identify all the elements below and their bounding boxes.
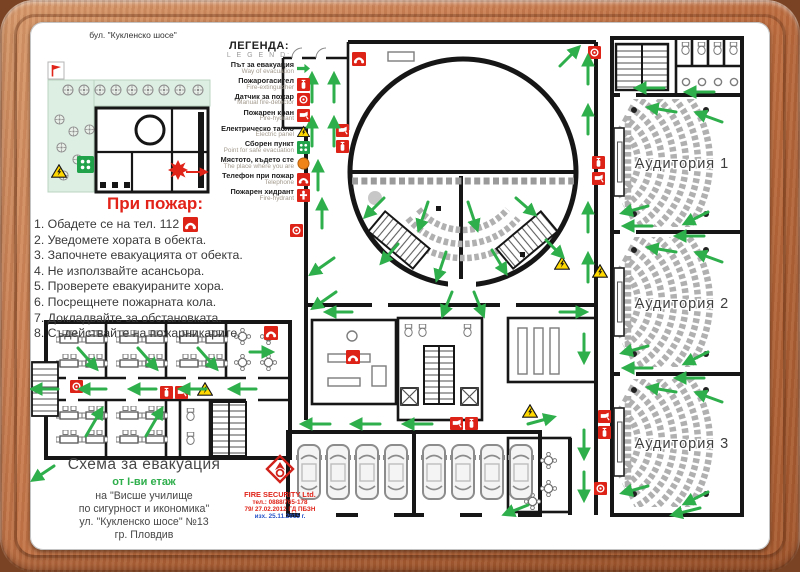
instruction-2: 2. Уведомете хората в обекта. [34,233,276,249]
fire-extinguisher-icon [592,156,605,169]
elevator-right [461,388,478,405]
legend-item-crane: Пожарен кранFire-hydrant [208,109,310,123]
telephone-icon [352,52,366,66]
fire-detector-icon [594,482,607,495]
floor-label: от I-ви етаж [38,476,250,488]
auditorium-3-label: Аудитория 3 [635,436,730,452]
legend-title-bg: ЛЕГЕНДА: [208,40,310,52]
site-map-flag-icon [48,62,64,79]
fire-crane-icon [336,124,349,137]
office-wing-stairs [212,402,246,456]
assembly-point-icon [297,141,310,154]
site-map [48,62,210,192]
company-license: 79/ 27.02.2012 ГД ПБЗН [232,506,328,513]
legend-item-you-are-here: Мястото, където стеThe place where you a… [208,156,310,170]
telephone-icon [183,217,198,232]
stairwell-top-right [616,44,668,90]
fire-crane-icon [297,109,310,122]
hydrant-icon [297,189,310,202]
core-stairs-wc-block [398,318,482,420]
instruction-5: 5. Проверете евакуираните хора. [34,279,276,295]
instruction-6: 6. Посрещнете пожарната кола. [34,295,276,311]
fire-detector-icon [297,93,310,106]
instruction-7: 7. Докладвайте за обстановката. [34,311,276,327]
electric-panel-icon [555,257,570,269]
fire-detector-icon [588,46,601,59]
institution-line-1: на "Висше училище [38,490,250,503]
instruction-3: 3. Започнете евакуацията от обекта. [34,248,276,264]
plan-title: Схема за евакуация [38,456,250,474]
company-phone: тел.: 0888/765-178 [232,499,328,506]
rotunda-stairs-right [496,211,557,268]
fire-extinguisher-icon [160,386,173,399]
company-name: FIRE SECURITY Ltd. [232,490,328,499]
company-stamp: FIRE SECURITY Ltd. тел.: 0888/765-178 79… [232,454,328,520]
institution-line-2: по сигурност и икономика" [38,503,250,516]
fire-extinguisher-icon [465,417,478,430]
electric-panel-icon [297,125,310,138]
telephone-icon [346,350,360,364]
street-label: бул. "Кукленско шосе" [48,30,218,40]
instruction-1: 1. Обадете се на тел. 112 [34,217,179,233]
legend-item-extinguisher: ПожарогасителFire-extinguisher [208,77,310,91]
assembly-point-icon [77,156,94,173]
instruction-4: 4. Не използвайте асансьора. [34,264,276,280]
legend-item-telephone: Телефон при пожарTelephone [208,172,310,186]
title-block: Схема за евакуация от I-ви етаж на "Висш… [38,456,250,542]
elevator-left [401,388,418,405]
fire-extinguisher-icon [336,140,349,153]
auditorium-2-label: Аудитория 2 [635,296,730,312]
fire-detector-icon [70,380,83,393]
city-line: гр. Пловдив [38,529,250,542]
legend: ЛЕГЕНДА: L E G E N D: Път за евакуацияWa… [208,40,310,204]
fire-extinguisher-icon [297,78,310,91]
fire-extinguisher-icon [598,426,611,439]
fire-instructions-title: При пожар: [34,194,276,214]
legend-item-assembly: Сборен пунктPoint for safe evacuation [208,140,310,154]
fire-crane-icon [592,172,605,185]
site-map-building [96,108,208,192]
address-line: ул. "Кукленско шосе" №13 [38,516,250,529]
fire-security-logo-icon [265,454,295,484]
fire-crane-icon [598,410,611,423]
legend-title-en: L E G E N D: [208,52,310,59]
you-are-here-icon [297,157,310,170]
fire-crane-icon [450,417,463,430]
legend-item-evacuation: Път за евакуацияWay of evacuation [208,61,310,75]
rotunda-stairs-left [368,211,429,268]
evacuation-arrow-icon [297,62,310,75]
rotunda-hall [350,52,576,290]
company-date: изх. 25.11.2015 г. [232,513,328,520]
fire-instructions: При пожар: 1. Обадете се на тел. 112 2. … [34,194,276,342]
legend-item-detector: Датчик за пожарManual fire-detector [208,93,310,107]
instruction-8: 8. Съдействайте на пожарникарите. [34,326,276,342]
fire-detector-icon [290,224,303,237]
office-wing-wc [187,408,194,444]
toilets-top-right [682,42,738,86]
evacuation-plan-sheet: Аудитория 1 Аудитория 2 Аудитория 3 [30,22,770,550]
telephone-icon [297,173,310,186]
auditorium-1-label: Аудитория 1 [635,156,730,172]
legend-item-electric: Електрическо таблоElectric panel [208,125,310,139]
electric-panel-icon [523,405,538,417]
